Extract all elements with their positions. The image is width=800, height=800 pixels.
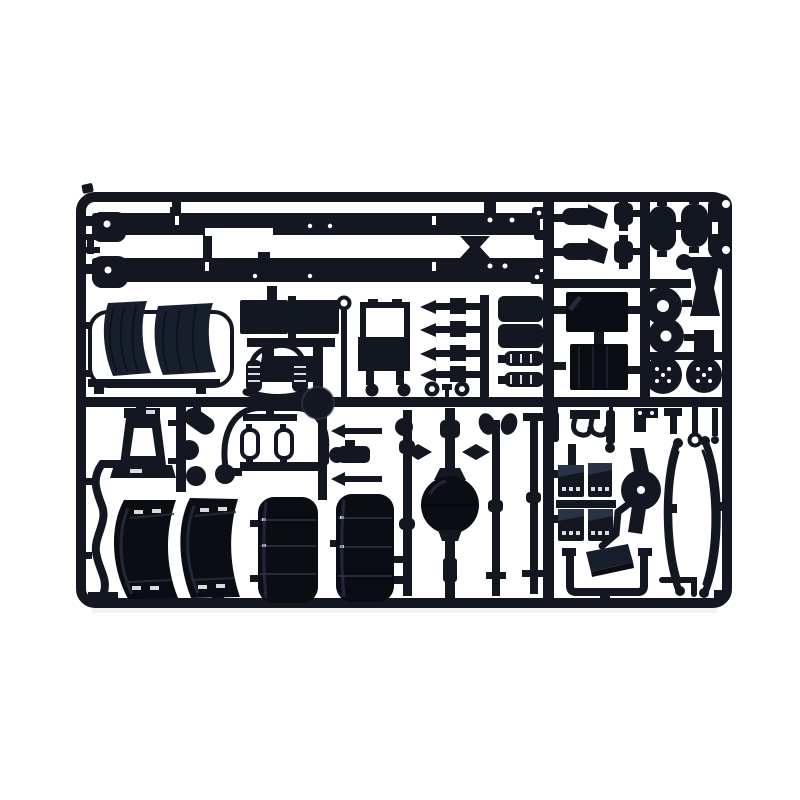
rear-mudguard-1 [114, 500, 178, 599]
fuel-tank-1 [258, 497, 318, 603]
tie-rod-2 [522, 413, 545, 594]
hourglass-bracket [690, 260, 720, 316]
tie-rod-1 [476, 411, 520, 596]
idler-sphere [302, 387, 334, 419]
battery-cover-pair [240, 296, 339, 361]
wheel-hub-1 [644, 356, 682, 394]
z-bracket [634, 408, 658, 432]
small-canister-1 [614, 197, 633, 231]
rings-and-balls [366, 382, 470, 398]
t-bracket [664, 408, 682, 434]
small-canister-2 [614, 235, 633, 269]
compressor [329, 440, 370, 463]
tow-hook-yoke [570, 410, 607, 435]
hooked-rod-1 [690, 406, 701, 446]
radiator [339, 298, 411, 399]
open-end-bracket [708, 194, 732, 260]
differential-carrier [621, 448, 661, 534]
rear-axle-differential [421, 408, 490, 598]
wheel-hub-2 [686, 357, 722, 393]
air-tank-1 [649, 200, 676, 257]
rail-bowtie-coupling [460, 236, 490, 258]
sprue-photo [0, 0, 800, 800]
leaf-spring-1 [664, 438, 685, 596]
air-tank-2 [681, 198, 708, 253]
exhaust-elbow-2 [562, 238, 608, 264]
exhaust-elbow-1 [562, 204, 608, 229]
fuel-tank-2 [336, 494, 394, 602]
rear-mudguard-2 [180, 498, 240, 598]
shock-absorber-2 [605, 403, 615, 453]
engine-cradle [246, 345, 318, 398]
silencer-halves [498, 351, 544, 387]
brake-drum-2 [648, 318, 684, 354]
product-photo [0, 0, 800, 800]
front-mudguard-group [88, 301, 232, 394]
equipment-panels [498, 296, 543, 348]
hooked-rod-2 [711, 408, 719, 444]
step-hanger [586, 544, 634, 577]
leaf-spring-2 [699, 436, 725, 598]
cover-plate [694, 330, 714, 352]
torque-rods [420, 298, 482, 382]
